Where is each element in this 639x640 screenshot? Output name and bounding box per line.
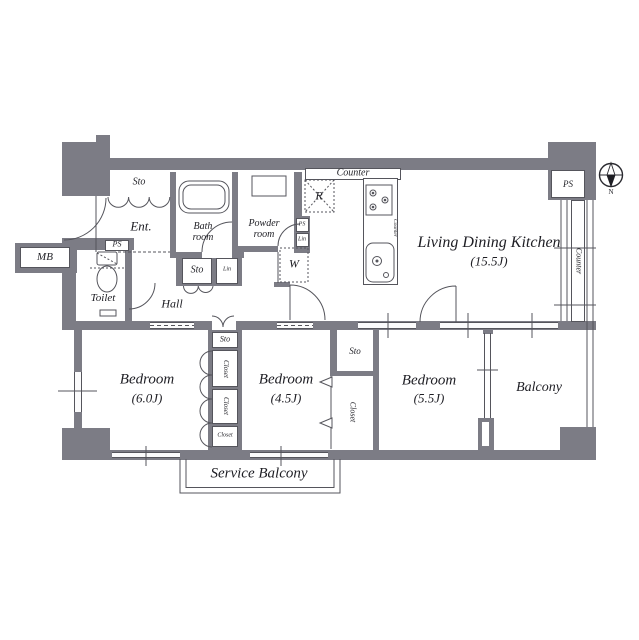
label-sto-entrance: Sto (133, 176, 146, 187)
compass-icon (600, 163, 623, 188)
room-label-balcony: Balcony (516, 380, 562, 396)
room-label-powder: Powder room (248, 218, 279, 240)
powder-line1: Powder (248, 218, 279, 229)
toilet-icon (90, 252, 124, 316)
stove-icon (366, 185, 392, 215)
label-counter-right: Counter (574, 248, 583, 274)
bathtub-icon (179, 181, 229, 213)
entrance-door-arc (64, 198, 106, 240)
window-ldk-east (561, 200, 567, 321)
label-counter-island: Counter (392, 219, 398, 237)
window-bedroom55-balcony (477, 333, 498, 418)
powder-line2: room (248, 229, 279, 240)
closet-mid-folding-marks (320, 377, 332, 428)
sto-bedroom-double-doors (212, 316, 234, 327)
bath-line1: Bath (193, 221, 214, 232)
room-label-entrance: Ent. (130, 220, 151, 235)
floor-plan: Living Dining Kitchen (15.5J) Bedroom (6… (0, 0, 639, 640)
label-counter-top: Counter (337, 167, 370, 178)
label-ps-kitchen: PS (299, 222, 306, 229)
label-ps-top-right: PS (563, 179, 573, 189)
label-closet-left-1: Closet (221, 360, 229, 378)
room-size-ldk: (15.5J) (470, 255, 507, 270)
bedroom55-door-arc (420, 286, 456, 322)
room-label-bedroom55: Bedroom (402, 373, 456, 390)
closet-left-folding-doors (200, 351, 212, 447)
hall-ldk-door-arc (290, 285, 325, 320)
room-size-bedroom6: (6.0J) (132, 392, 163, 407)
kitchen-sink-icon (366, 243, 394, 282)
room-size-bedroom45: (4.5J) (271, 392, 302, 407)
label-sto-hall: Sto (191, 264, 204, 275)
plan-linework (0, 0, 639, 640)
label-lin-kitchen: Lin (298, 237, 306, 244)
label-closet-left-2: Closet (221, 397, 229, 415)
window-ldk-south-ticks (388, 313, 532, 338)
sto-hall-folding-doors (184, 286, 214, 293)
vanity-sink-icon (252, 176, 286, 196)
room-label-service-balcony: Service Balcony (210, 466, 307, 483)
room-label-bedroom45: Bedroom (259, 372, 313, 389)
label-washer: W (289, 257, 299, 270)
balcony-railing-east (587, 200, 593, 427)
room-label-bedroom6: Bedroom (120, 372, 174, 389)
toilet-door-arc (129, 283, 155, 309)
bath-line2: room (193, 232, 214, 243)
powder-door-arc (278, 224, 300, 246)
label-lin-hall: Lin (223, 267, 231, 274)
label-closet-mid: Closet (348, 402, 357, 422)
label-closet-left-3: Closet (217, 433, 232, 440)
label-compass-north: N (608, 189, 613, 197)
sto-entrance-folding-doors (108, 197, 170, 207)
window-south-ticks (146, 446, 281, 466)
room-label-bath: Bath room (193, 221, 214, 243)
label-meter-box: MB (37, 251, 53, 263)
label-refrigerator: R (315, 189, 322, 202)
label-sto-bedroom-left: Sto (220, 336, 230, 345)
room-size-bedroom55: (5.5J) (414, 392, 445, 407)
label-sto-bedroom-mid: Sto (349, 346, 361, 356)
label-ps-toilet: PS (113, 241, 122, 250)
room-label-hall: Hall (161, 297, 182, 310)
room-label-ldk: Living Dining Kitchen (417, 234, 560, 252)
room-label-toilet: Toilet (91, 292, 116, 304)
